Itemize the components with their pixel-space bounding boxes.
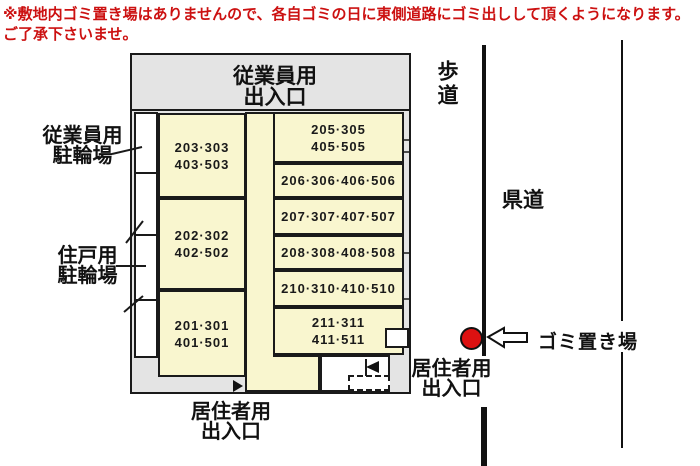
strip-divider [134,172,158,174]
dashed-area-box [348,375,390,391]
resident-entrance-bottom-label: 居住者用 出入口 [175,402,287,442]
site-plan-diagram: ※敷地内ゴミ置き場はありませんので、各自ゴミの日に東側道路にゴミ出しして頂くよう… [0,0,700,466]
road-outer-line [621,40,623,321]
resident-entrance-right-label: 居住者用 出入口 [403,359,500,399]
employee-entrance-label: 従業員用 出入口 [200,66,350,108]
notice-text-line1: ※敷地内ゴミ置き場はありませんので、各自ゴミの日に東側道路にゴミ出しして頂くよう… [3,3,690,24]
resident-bicycle-parking-label: 住戸用 駐輪場 [45,246,130,286]
strip-divider [134,299,158,301]
employee-bicycle-parking-label: 従業員用 駐輪場 [35,126,130,166]
road-edge-line [481,407,487,466]
room-block-202: 202·302 402·502 [158,198,246,290]
entrance-strip-divider [132,109,409,111]
road-edge-line [482,45,486,356]
room-block-210: 210·310·410·510 [273,270,404,307]
prefectural-road-label: 県道 [502,184,544,214]
road-outer-line [621,352,623,448]
room-block-208: 208·308·408·508 [273,235,404,270]
room-block-205: 205·305 405·505 [273,112,404,163]
garbage-location-marker [460,327,483,350]
wall-notch-box [385,328,409,348]
room-block-201: 201·301 401·501 [158,290,246,377]
strip-divider [134,234,158,236]
room-block-206: 206·306·406·506 [273,163,404,198]
room-block-207: 207·307·407·507 [273,198,404,235]
garbage-site-label: ゴミ置き場 [538,327,638,354]
notice-text-line2: ご了承下さいませ。 [3,23,138,44]
sidewalk-label: 歩道 [431,60,461,108]
room-block-203: 203·303 403·503 [158,113,246,198]
garbage-arrow-icon [488,328,527,347]
